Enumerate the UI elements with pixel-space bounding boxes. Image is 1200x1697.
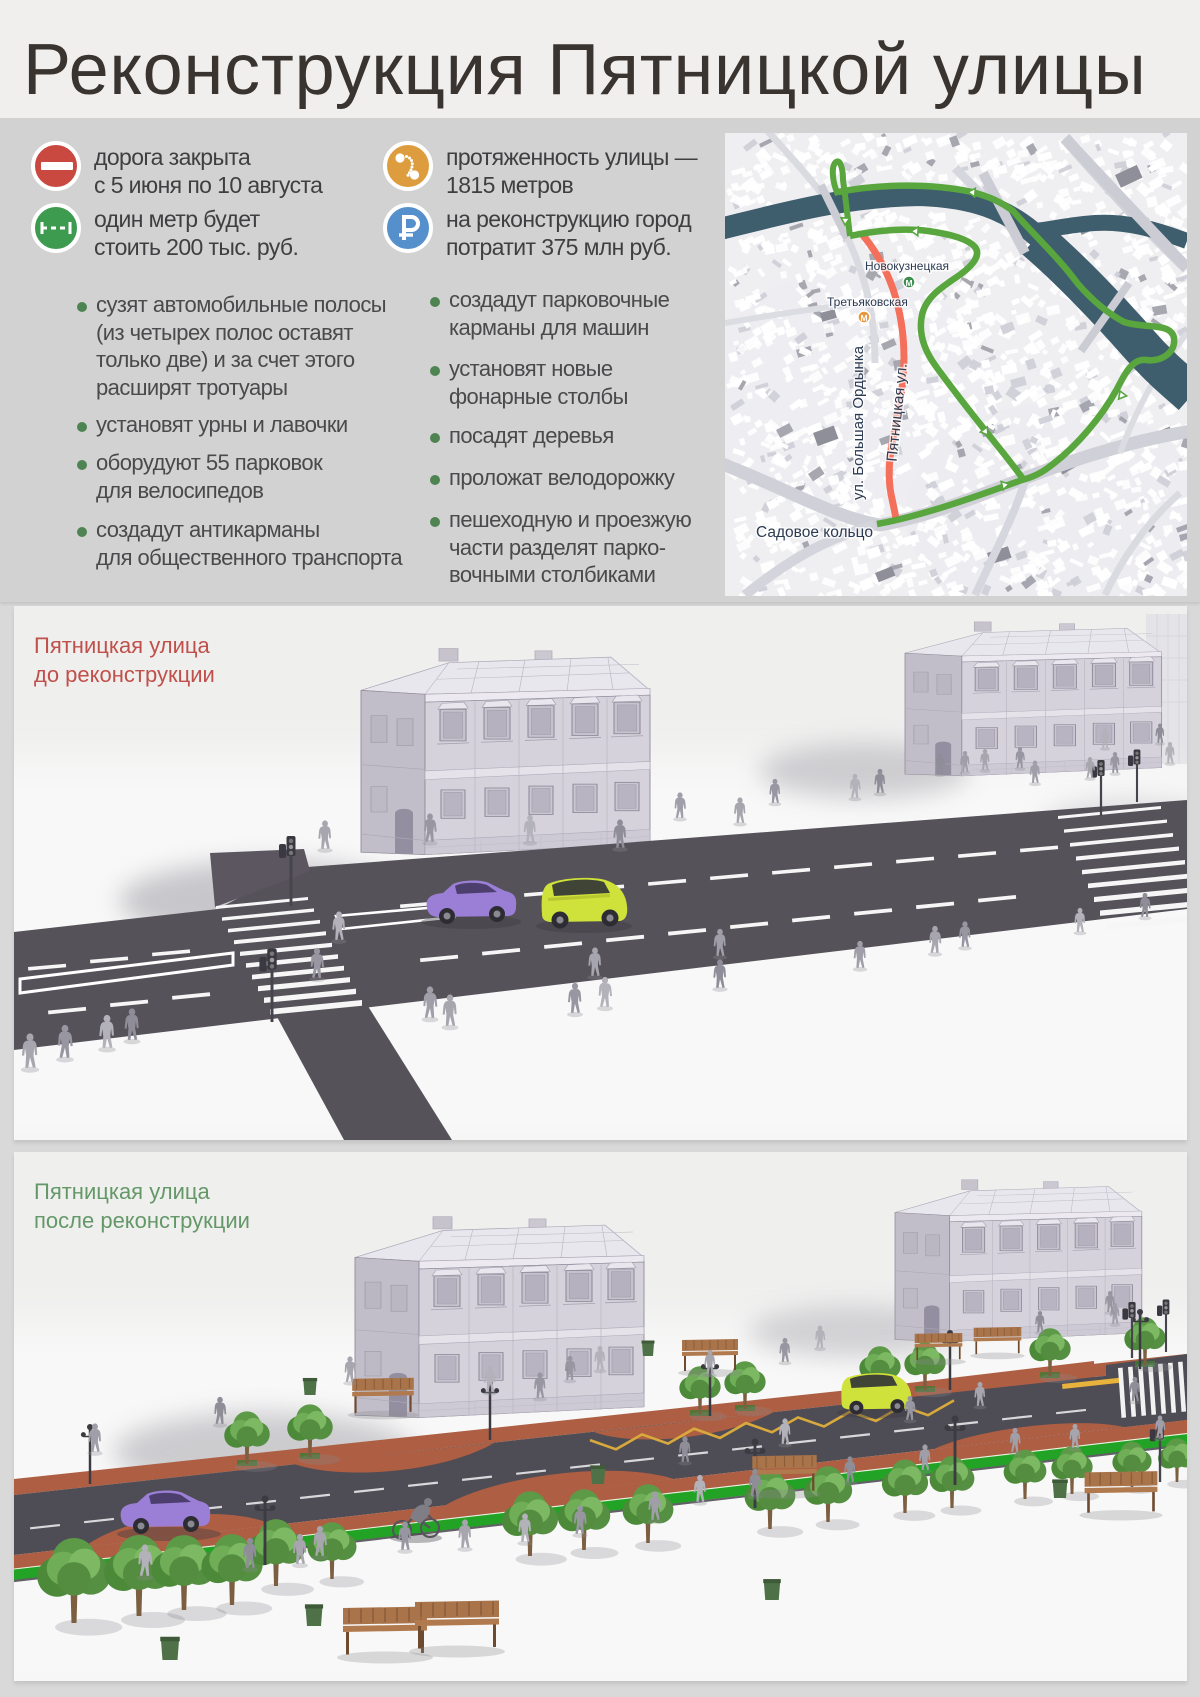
- svg-text:Новокузнецкая: Новокузнецкая: [865, 259, 949, 273]
- svg-text:Садовое кольцо: Садовое кольцо: [756, 524, 873, 541]
- svg-text:М: М: [860, 313, 867, 323]
- svg-text:Третьяковская: Третьяковская: [827, 295, 908, 309]
- svg-text:ул. Большая Ордынка: ул. Большая Ордынка: [850, 345, 867, 500]
- svg-text:М: М: [905, 278, 912, 288]
